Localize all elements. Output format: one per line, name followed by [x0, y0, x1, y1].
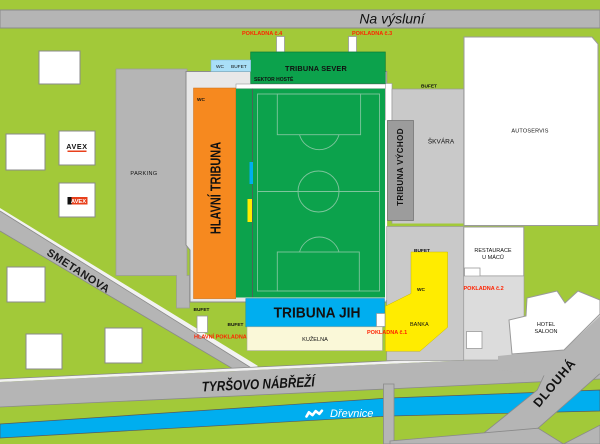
svg-text:POKLADNA č.3: POKLADNA č.3: [352, 31, 392, 37]
svg-text:HOTEL: HOTEL: [537, 322, 555, 328]
svg-text:POKLADNA č.2: POKLADNA č.2: [464, 286, 504, 292]
svg-text:TRIBUNA VÝCHOD: TRIBUNA VÝCHOD: [396, 128, 405, 206]
svg-text:HLAVNÍ TRIBUNA: HLAVNÍ TRIBUNA: [207, 141, 224, 234]
svg-text:HLAVNÍ POKLADNA: HLAVNÍ POKLADNA: [194, 333, 247, 341]
svg-text:WC: WC: [216, 64, 225, 70]
svg-text:TRIBUNA SEVER: TRIBUNA SEVER: [285, 64, 347, 73]
svg-text:POKLADNA č.4: POKLADNA č.4: [242, 31, 283, 37]
svg-text:BUFET: BUFET: [421, 84, 437, 90]
svg-text:BUFET: BUFET: [231, 64, 247, 70]
svg-text:BUFET: BUFET: [414, 248, 430, 254]
svg-text:TRIBUNA JIH: TRIBUNA JIH: [274, 305, 361, 322]
svg-text:AVEX: AVEX: [71, 199, 86, 205]
svg-text:BUFET: BUFET: [194, 307, 210, 313]
svg-text:BANKA: BANKA: [410, 322, 429, 328]
svg-text:Dřevnice: Dřevnice: [330, 408, 373, 420]
svg-text:SALOON: SALOON: [535, 329, 558, 335]
svg-text:WC: WC: [417, 287, 426, 293]
svg-text:AVEX: AVEX: [66, 142, 87, 151]
svg-text:KUŽELNA: KUŽELNA: [302, 335, 328, 343]
svg-text:RESTAURACE: RESTAURACE: [474, 248, 512, 254]
svg-text:U MÁCŮ: U MÁCŮ: [482, 254, 504, 261]
svg-text:WC: WC: [197, 97, 206, 103]
svg-text:PARKING: PARKING: [130, 171, 157, 177]
svg-text:ŠKVÁRA: ŠKVÁRA: [428, 137, 455, 146]
svg-text:AUTOSERVIS: AUTOSERVIS: [511, 129, 548, 135]
svg-text:SEKTOR HOSTÉ: SEKTOR HOSTÉ: [254, 75, 294, 83]
svg-text:POKLADNA č.1: POKLADNA č.1: [367, 330, 407, 336]
svg-text:Na výsluní: Na výsluní: [359, 11, 426, 27]
svg-text:BUFET: BUFET: [228, 322, 244, 328]
